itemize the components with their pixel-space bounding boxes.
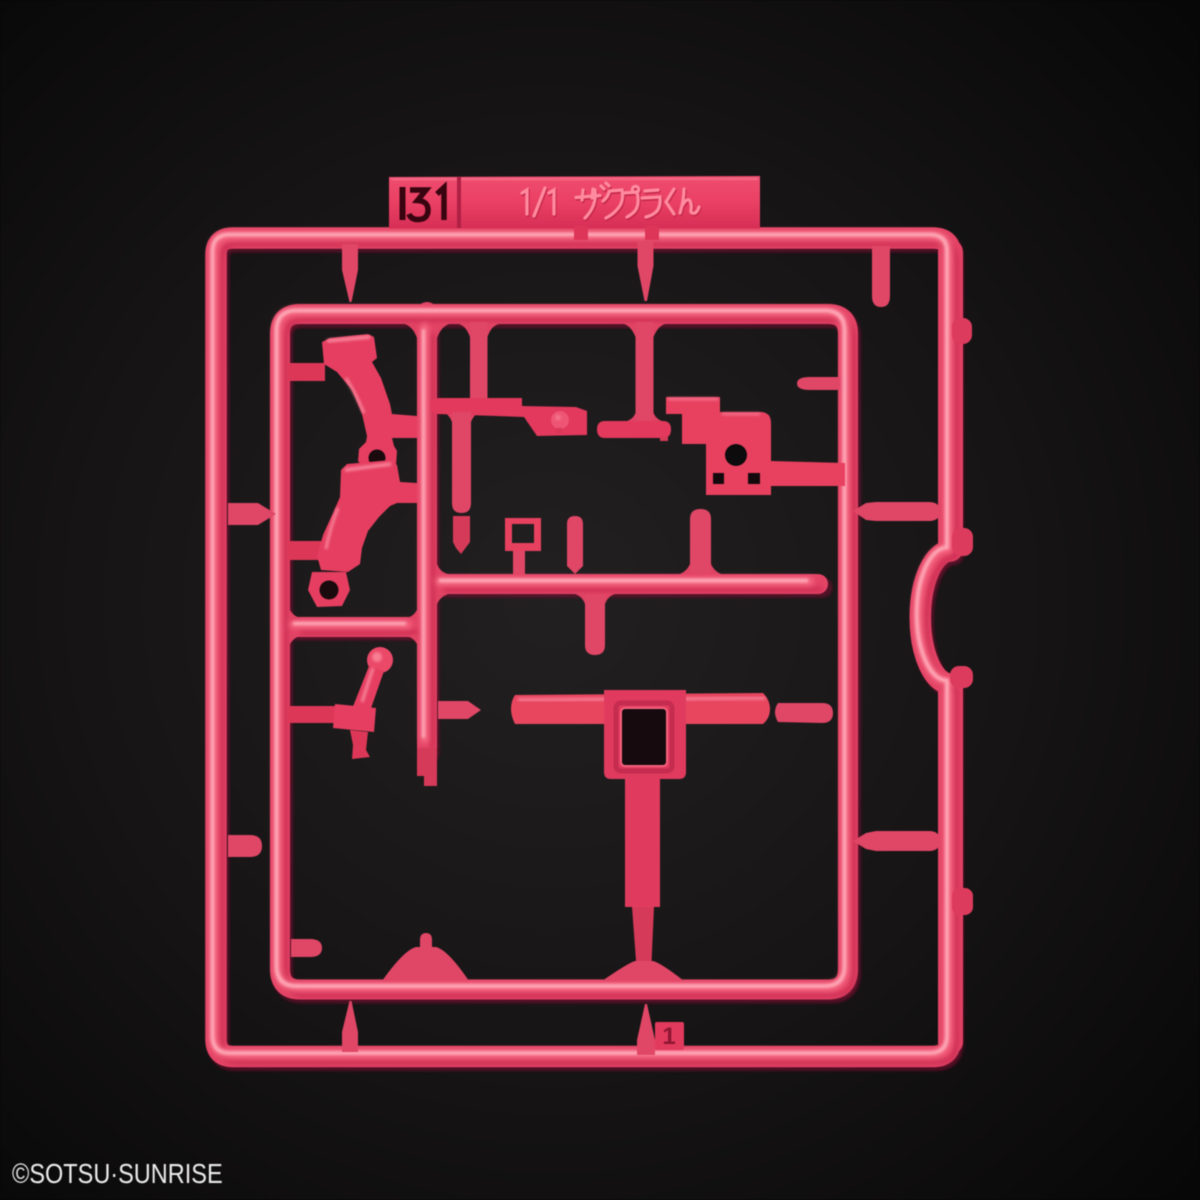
svg-text:1: 1 xyxy=(662,1023,675,1050)
svg-text:©SOTSU·SUNRISE: ©SOTSU·SUNRISE xyxy=(12,1159,223,1189)
